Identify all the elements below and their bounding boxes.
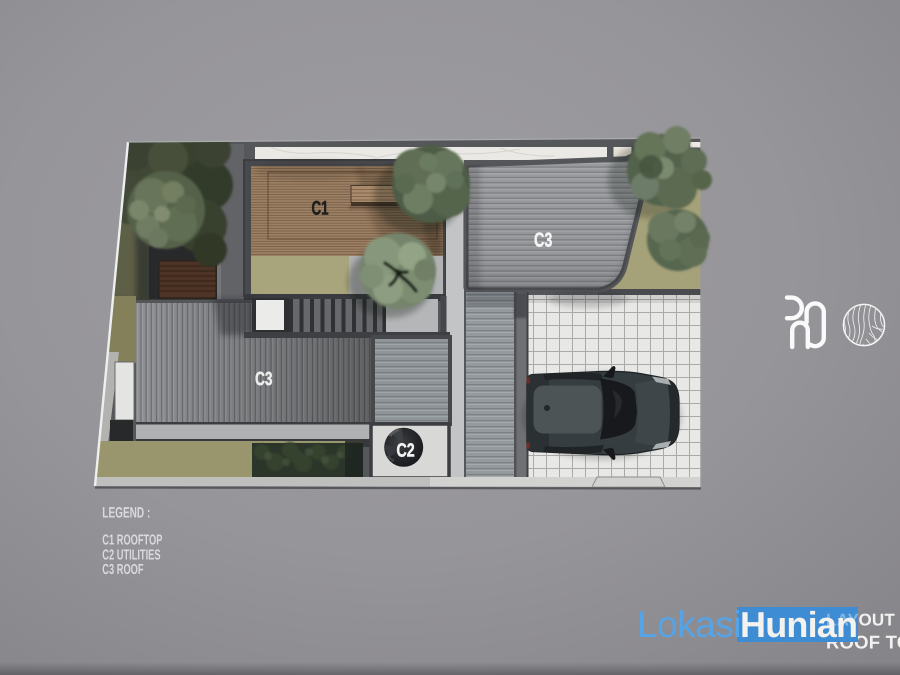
svg-text:LEGEND :: LEGEND : xyxy=(102,505,150,522)
svg-text:C1: C1 xyxy=(312,198,329,220)
svg-text:C3 ROOF: C3 ROOF xyxy=(102,562,143,578)
svg-text:C3: C3 xyxy=(534,229,552,251)
svg-text:OUT: OUT xyxy=(859,611,896,630)
svg-text:Hunian: Hunian xyxy=(740,604,857,645)
svg-text:C1 ROOFTOP: C1 ROOFTOP xyxy=(102,532,162,548)
svg-text:C3: C3 xyxy=(255,369,272,390)
svg-text:Lokasi: Lokasi xyxy=(637,604,741,645)
svg-text:C2: C2 xyxy=(397,440,415,461)
